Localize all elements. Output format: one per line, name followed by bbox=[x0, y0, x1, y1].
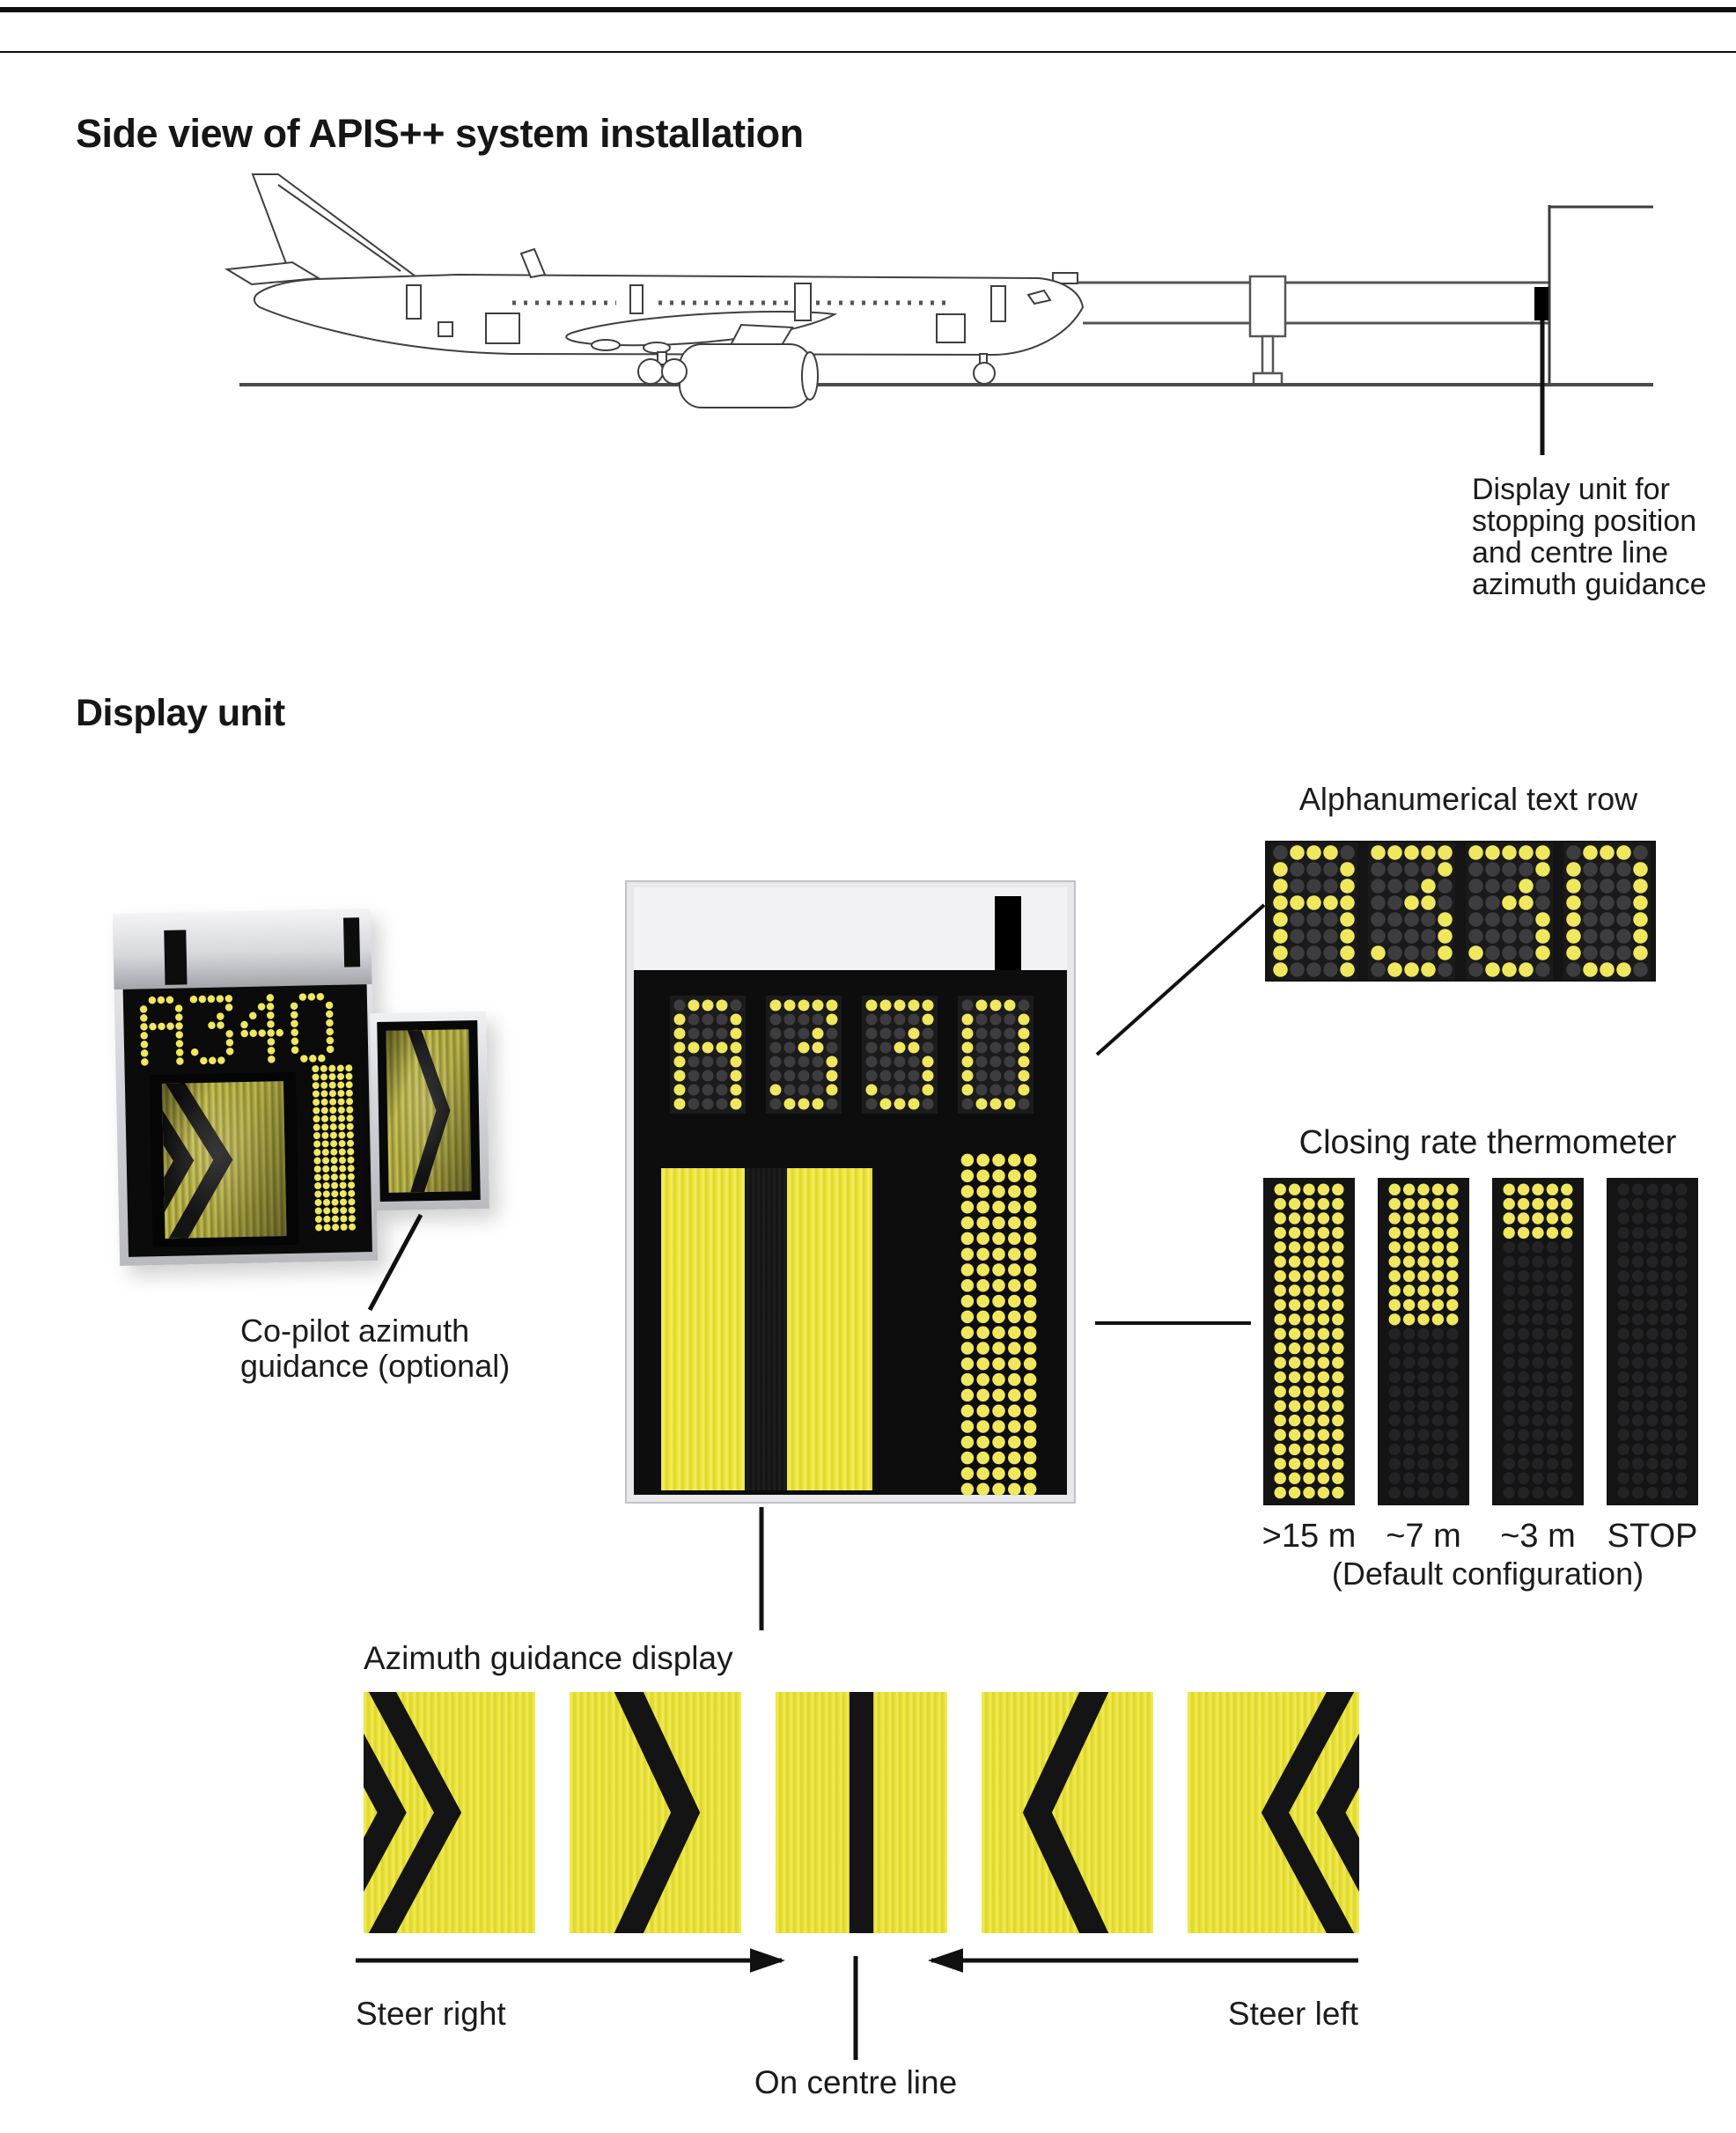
azimuth-panel-single-right bbox=[570, 1692, 741, 1933]
led-char-A bbox=[673, 998, 743, 1111]
led-column-dots bbox=[1273, 1182, 1345, 1500]
led-char-3 bbox=[189, 994, 235, 1065]
label-text: (Default configuration) bbox=[1332, 1556, 1644, 1592]
nose-gear-wheel bbox=[974, 363, 995, 384]
azimuth-section-label: Azimuth guidance display bbox=[364, 1641, 733, 1676]
aircraft-door bbox=[991, 286, 1005, 321]
led-char-0 bbox=[960, 998, 1031, 1111]
thermo-column-label: ~7 m bbox=[1386, 1518, 1461, 1556]
azimuth-panel-single-left bbox=[982, 1692, 1153, 1933]
label-text: Azimuth guidance display bbox=[364, 1640, 733, 1676]
thermometer-note: (Default configuration) bbox=[1488, 1556, 1736, 1592]
unit-front-panel bbox=[123, 984, 372, 1257]
steer-left-label: Steer left bbox=[1358, 1997, 1489, 2032]
thermo-column-gt15m: >15 m bbox=[1263, 1178, 1355, 1505]
main-gear-wheel bbox=[662, 359, 687, 384]
thermo-column-7m: ~7 m bbox=[1378, 1178, 1469, 1505]
copilot-front-panel bbox=[377, 1020, 481, 1202]
copilot-label: Co-pilot azimuth guidance (optional) bbox=[240, 1313, 510, 1384]
azimuth-panel-double-left bbox=[1188, 1692, 1359, 1933]
chevron-single-left-icon bbox=[982, 1692, 1153, 1933]
chevron-double-right-icon bbox=[364, 1692, 535, 1933]
bridge-support-pillar bbox=[1250, 276, 1285, 385]
led-char-cell bbox=[958, 996, 1034, 1114]
central-text-row-a330 bbox=[670, 996, 1034, 1114]
display-unit-photo bbox=[113, 908, 378, 1266]
led-char-cell bbox=[239, 993, 285, 1064]
aircraft-winglet bbox=[521, 249, 545, 277]
led-char-A bbox=[1272, 844, 1356, 978]
label-line: azimuth guidance bbox=[1472, 569, 1707, 600]
azimuth-panel-double-right bbox=[364, 1692, 535, 1933]
aircraft-door bbox=[795, 283, 811, 320]
flap-fairing bbox=[698, 345, 721, 355]
aircraft-fuselage bbox=[254, 275, 1083, 355]
led-char-3 bbox=[1468, 844, 1551, 978]
unit-top-band bbox=[113, 908, 372, 989]
thermo-dots bbox=[1387, 1182, 1460, 1500]
chevron-double-right-icon bbox=[162, 1081, 287, 1239]
led-column-dots bbox=[311, 1063, 356, 1232]
led-char-3 bbox=[769, 998, 839, 1111]
chevron-double-left-icon bbox=[1188, 1692, 1359, 1933]
label-line: stopping position bbox=[1472, 505, 1707, 537]
engine-nacelle bbox=[680, 344, 812, 408]
led-column-dots bbox=[1387, 1182, 1460, 1500]
photo-thermometer-column bbox=[311, 1063, 356, 1232]
thermo-column-label: >15 m bbox=[1262, 1518, 1357, 1556]
led-char-cell bbox=[1466, 842, 1553, 980]
central-display-unit bbox=[625, 880, 1076, 1504]
led-column-dots bbox=[1502, 1182, 1574, 1500]
label-text: Steer right bbox=[356, 1996, 506, 2032]
central-thermometer-column bbox=[960, 1152, 1038, 1497]
on-centre-line-label: On centre line bbox=[856, 2065, 1058, 2100]
alphanumerical-label: Alphanumerical text row bbox=[1468, 782, 1736, 817]
flap-fairing bbox=[592, 340, 620, 350]
label-line: guidance (optional) bbox=[240, 1349, 510, 1384]
led-char-4 bbox=[239, 993, 285, 1064]
label-line: Display unit for bbox=[1472, 474, 1707, 505]
photo-azimuth-bezel bbox=[150, 1072, 299, 1247]
aircraft-side-view bbox=[227, 174, 1083, 408]
photo-azimuth-display bbox=[162, 1081, 287, 1239]
thermometer-label: Closing rate thermometer bbox=[1488, 1125, 1736, 1160]
azimuth-panel-centre-line bbox=[776, 1692, 947, 1933]
yellow-bar-left bbox=[661, 1168, 745, 1490]
led-char-0 bbox=[1565, 844, 1649, 978]
chevron-centre-line-icon bbox=[776, 1692, 947, 1933]
label-text: Alphanumerical text row bbox=[1299, 782, 1637, 817]
led-char-cell bbox=[1368, 842, 1455, 980]
steer-right-label: Steer right bbox=[356, 1997, 506, 2032]
led-char-3 bbox=[864, 998, 935, 1111]
section-title-display-unit: Display unit bbox=[76, 692, 285, 735]
yellow-bar-right bbox=[787, 1168, 872, 1490]
led-char-A bbox=[139, 995, 185, 1066]
copilot-unit-photo bbox=[370, 1011, 489, 1210]
aircraft-stabilizer bbox=[227, 262, 319, 284]
top-thick-rule bbox=[0, 7, 1736, 12]
thermo-column-label: ~3 m bbox=[1500, 1518, 1576, 1556]
led-char-3 bbox=[1370, 844, 1453, 978]
centre-line-azimuth-bars bbox=[661, 1168, 872, 1490]
cockpit-windows bbox=[1028, 291, 1050, 304]
chevron-single-right-icon bbox=[570, 1692, 741, 1933]
led-char-cell bbox=[189, 994, 235, 1065]
service-hatch bbox=[438, 322, 452, 336]
thermo-dots bbox=[1616, 1182, 1688, 1500]
label-line: Co-pilot azimuth bbox=[240, 1313, 510, 1349]
aircraft-rudder-line bbox=[278, 185, 401, 271]
led-column-dots bbox=[1616, 1182, 1688, 1500]
led-column-dots bbox=[960, 1152, 1038, 1497]
mounting-slot bbox=[164, 930, 187, 985]
display-black-panel bbox=[634, 970, 1067, 1495]
jet-bridge-corridor bbox=[1065, 283, 1549, 323]
flap-fairing bbox=[644, 342, 670, 353]
main-gear-strut bbox=[658, 352, 666, 364]
led-char-cell bbox=[1270, 842, 1357, 980]
terminal-wall bbox=[1549, 205, 1653, 385]
chevron-single-right-icon bbox=[386, 1029, 471, 1193]
display-top-strip-bar bbox=[995, 896, 1021, 972]
aircraft-door bbox=[630, 285, 643, 313]
cargo-door bbox=[486, 313, 519, 343]
alphanumerical-closeup-panel bbox=[1265, 841, 1656, 982]
wall-display-label: Display unit for stopping position and c… bbox=[1472, 474, 1707, 600]
led-char-cell bbox=[862, 996, 938, 1114]
aircraft-tail-fin bbox=[253, 174, 416, 280]
thermo-dots bbox=[1502, 1182, 1574, 1500]
aircraft-door-frame bbox=[1053, 273, 1078, 283]
label-text: On centre line bbox=[754, 2065, 957, 2100]
label-text: Steer left bbox=[1228, 1997, 1358, 2032]
thermo-dots bbox=[1273, 1182, 1345, 1500]
alphanumerical-connector-line bbox=[1097, 905, 1264, 1055]
engine-pylon bbox=[731, 325, 792, 345]
top-thin-rule bbox=[0, 51, 1736, 53]
document-page: Side view of APIS++ system installation bbox=[0, 0, 1736, 2133]
led-char-cell bbox=[290, 992, 335, 1063]
thermo-column-label: STOP bbox=[1607, 1518, 1698, 1556]
cargo-door bbox=[937, 314, 965, 342]
led-char-cell bbox=[670, 996, 746, 1114]
wall-display-unit-marker bbox=[1534, 287, 1548, 320]
aircraft-wing bbox=[566, 312, 835, 345]
photo-text-row-a340 bbox=[139, 992, 335, 1067]
led-char-cell bbox=[1563, 842, 1651, 980]
nose-gear-strut bbox=[980, 354, 987, 366]
label-text: Closing rate thermometer bbox=[1299, 1125, 1677, 1160]
copilot-leader-line bbox=[370, 1215, 421, 1310]
led-char-cell bbox=[766, 996, 842, 1114]
thermo-column-3m: ~3 m bbox=[1492, 1178, 1584, 1505]
led-char-0 bbox=[290, 992, 335, 1063]
aircraft-door bbox=[407, 285, 421, 319]
label-line: and centre line bbox=[1472, 537, 1707, 569]
section-title-installation: Side view of APIS++ system installation bbox=[76, 111, 804, 157]
mounting-slot bbox=[343, 917, 360, 967]
copilot-azimuth-display bbox=[386, 1029, 471, 1193]
thermo-column-stop: STOP bbox=[1607, 1178, 1698, 1505]
engine-inlet bbox=[802, 352, 818, 400]
led-char-cell bbox=[139, 995, 185, 1066]
main-gear-wheel bbox=[638, 359, 663, 384]
